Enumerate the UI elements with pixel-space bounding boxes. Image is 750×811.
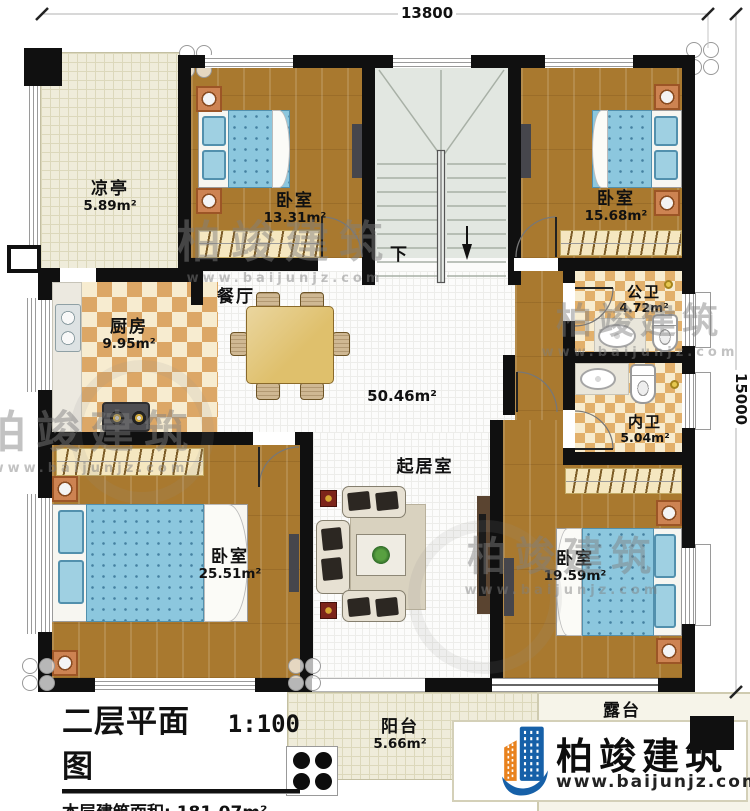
pillow	[654, 150, 678, 180]
plant	[372, 546, 390, 564]
company-logo-icon	[500, 724, 550, 796]
door-gap-bedroomTR	[514, 258, 558, 271]
wardrobe	[560, 230, 682, 256]
wall-corridor	[503, 355, 515, 415]
nightstand	[656, 638, 682, 664]
wall-bath-bottom	[563, 452, 695, 465]
pillow	[58, 560, 84, 604]
nightstand	[196, 86, 222, 112]
wall-bedroomBL-right	[300, 432, 313, 678]
sill-left-2	[24, 494, 38, 634]
window-left-bedroomBL	[38, 498, 52, 632]
inner-bath-label: 内卫5.04m²	[597, 414, 693, 445]
title-block: 二层平面图 1:100 本层建筑面积: 181.07m² 层高: 3.6m	[62, 696, 300, 811]
sill-left-1	[24, 298, 38, 392]
plan-title: 二层平面图	[62, 696, 216, 786]
nightstand	[52, 476, 78, 502]
window-right-bedroomBR	[682, 548, 695, 624]
pillow	[654, 116, 678, 146]
balcony-label: 阳台5.66m²	[350, 718, 450, 752]
kitchen-sink	[55, 304, 81, 352]
company-website: www.baijunjz.com	[556, 772, 750, 792]
cushion	[321, 527, 343, 551]
nightstand	[52, 650, 78, 676]
dining-table	[246, 306, 334, 384]
wall-bath-mid	[563, 352, 695, 363]
blanket	[592, 110, 608, 188]
chimney-box	[7, 245, 41, 273]
door-gap-pavilion-kitchen	[60, 268, 96, 282]
cushion	[375, 597, 399, 617]
bedroom-bottom-left-label: 卧室25.51m²	[178, 548, 282, 582]
tv	[521, 124, 531, 178]
stairs-down-label: 下	[390, 240, 407, 265]
floor-area-line: 本层建筑面积: 181.07m²	[62, 798, 300, 811]
pillow	[654, 584, 676, 628]
pillow	[202, 150, 226, 180]
tv	[289, 534, 299, 592]
nightstand	[654, 84, 680, 110]
column-rings-bottom-left	[22, 658, 55, 691]
tv	[352, 124, 362, 178]
watermark-swirl	[70, 360, 214, 504]
floor-plan: 13800 15000 凉亭5.89m² 卧室13.31m² 卧室15.68m²…	[0, 0, 750, 811]
cushion	[347, 597, 371, 617]
nightstand	[196, 188, 222, 214]
window-top-bedroomTR	[545, 55, 633, 68]
side-table	[320, 490, 337, 507]
cushion	[375, 491, 399, 511]
kitchen-label: 厨房9.95m²	[84, 318, 174, 352]
sill-right-3	[695, 544, 711, 626]
window-top-stair	[393, 55, 471, 68]
plan-scale: 1:100	[228, 710, 300, 738]
sill-right-1	[695, 292, 711, 348]
pillow	[202, 116, 226, 146]
door-gap-public-bath	[563, 283, 575, 321]
wardrobe	[565, 468, 682, 494]
living-label: 起居室	[392, 458, 458, 477]
hallway-floor-2	[503, 420, 563, 465]
pillow	[58, 510, 84, 554]
sill-right-2	[695, 372, 711, 430]
wall-bedroomTL-left	[178, 55, 191, 271]
pavilion-column	[24, 48, 62, 86]
dining-chair	[256, 382, 280, 400]
window-left-kitchen	[38, 300, 52, 390]
bath-sink	[580, 368, 616, 390]
side-table	[320, 602, 337, 619]
public-bath-label: 公卫4.72m²	[596, 284, 692, 315]
pillow	[654, 534, 676, 578]
bedroom-top-left-label: 卧室13.31m²	[240, 192, 350, 226]
wall-stair-right	[508, 55, 521, 285]
terrace-column	[690, 716, 734, 750]
wardrobe	[198, 230, 320, 258]
cushion	[347, 491, 371, 511]
bedroom-top-right-label: 卧室15.68m²	[561, 190, 671, 224]
dimension-right: 15000	[732, 370, 750, 428]
living-area-label: 50.46m²	[366, 388, 438, 405]
dining-label: 餐厅	[212, 288, 260, 307]
terrace-label: 露台	[590, 702, 654, 721]
balcony-opening	[312, 678, 425, 692]
sliding-door-bedroomBR	[492, 678, 658, 692]
title-underline	[62, 789, 300, 794]
door-gap-bedroomTL	[318, 258, 362, 271]
window-bottom-bedroomBL	[95, 678, 255, 692]
pavilion-label: 凉亭5.89m²	[58, 180, 162, 214]
column-rings-balcony-left	[288, 658, 321, 691]
dimension-top: 13800	[398, 4, 456, 22]
watermark-swirl	[408, 520, 562, 674]
wall-kitchen-stub	[191, 271, 203, 305]
dining-chair	[332, 332, 350, 356]
door-gap-bedroomBL	[253, 432, 295, 445]
toilet	[630, 364, 656, 404]
door-gap-inner-bath	[563, 410, 575, 448]
ceiling-lamp	[670, 380, 679, 389]
bath-sink	[598, 324, 636, 348]
nightstand	[656, 500, 682, 526]
dining-chair	[300, 382, 324, 400]
window-top-bedroomTL	[205, 55, 293, 68]
wall-stair-left	[362, 55, 375, 285]
toilet	[652, 314, 678, 352]
cushion	[321, 557, 343, 581]
